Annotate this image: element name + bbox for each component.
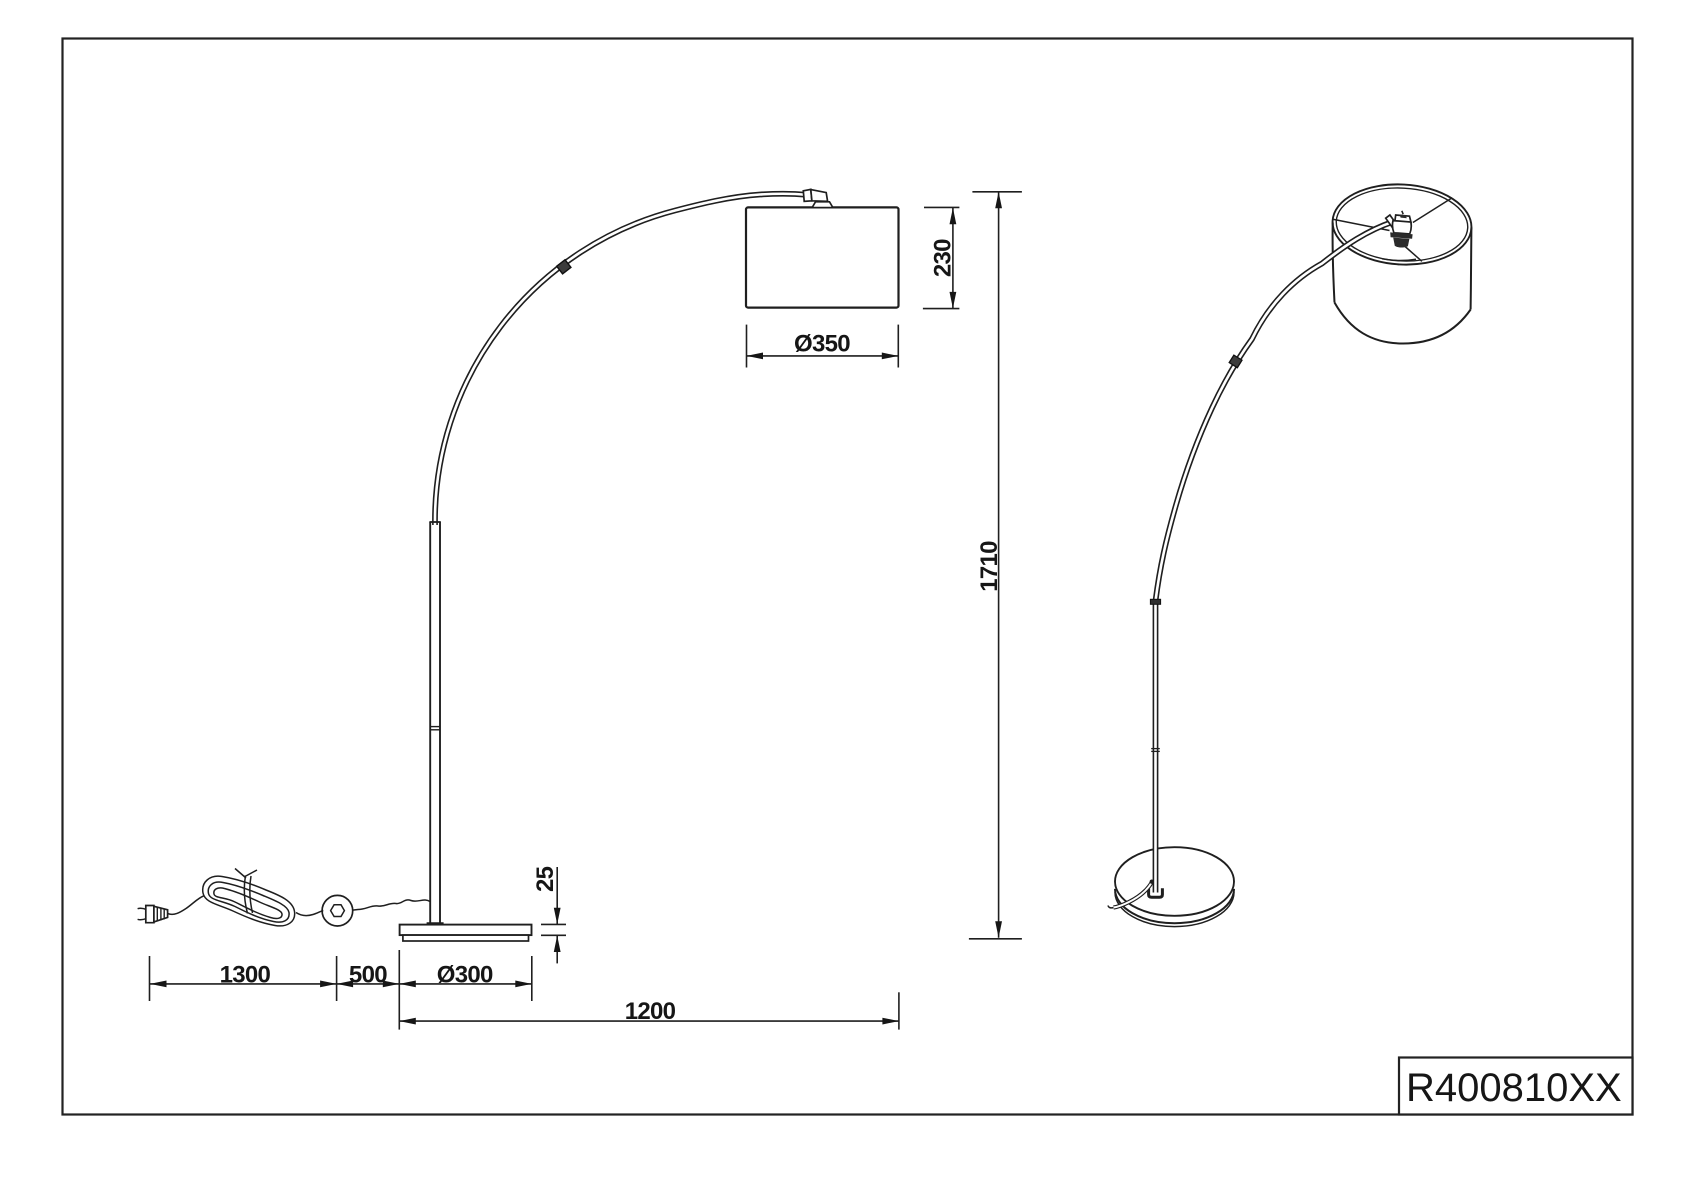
svg-text:500: 500 bbox=[349, 961, 387, 988]
svg-text:230: 230 bbox=[930, 239, 957, 277]
svg-text:1200: 1200 bbox=[625, 998, 676, 1025]
svg-text:Ø300: Ø300 bbox=[437, 961, 493, 988]
svg-text:Ø350: Ø350 bbox=[794, 331, 850, 358]
svg-text:1710: 1710 bbox=[976, 541, 1003, 592]
svg-text:25: 25 bbox=[532, 866, 559, 892]
svg-text:R400810XX: R400810XX bbox=[1406, 1066, 1622, 1110]
svg-text:1300: 1300 bbox=[220, 961, 271, 988]
